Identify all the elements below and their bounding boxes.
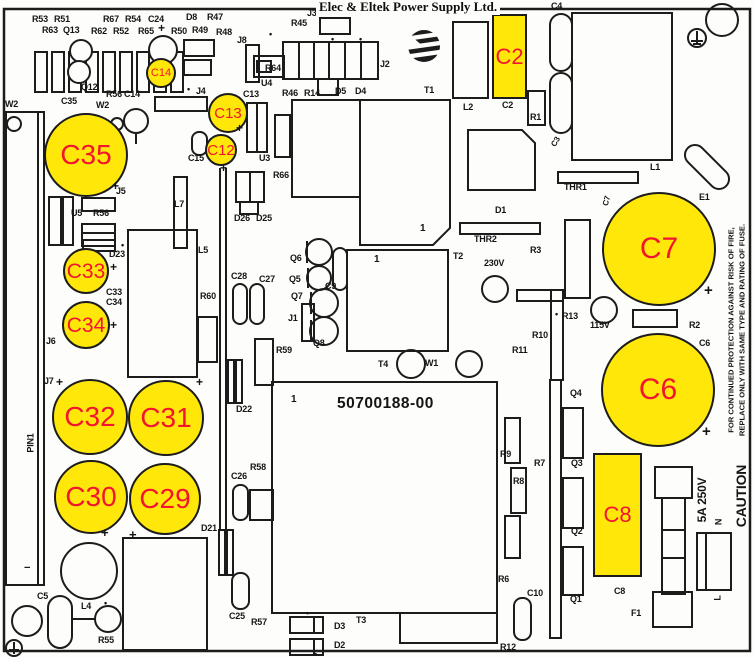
silkscreen-label: L4	[81, 602, 91, 611]
silkscreen-label: R56	[106, 90, 122, 99]
silkscreen-label: Q12	[81, 83, 97, 92]
caution-text-line1: FOR CONTINUED PROTECTION AGAINST RISK OF…	[727, 227, 736, 433]
silkscreen-label: Q1	[570, 595, 582, 604]
silkscreen-label: C13	[243, 90, 259, 99]
silkscreen-label: L2	[463, 103, 473, 112]
silkscreen-label: R57	[251, 618, 267, 627]
silkscreen-label: Q7	[291, 292, 303, 301]
silkscreen-label: R7	[534, 459, 545, 468]
part-number: 50700188-00	[337, 395, 434, 413]
silkscreen-label: C8	[614, 587, 625, 596]
silkscreen-label: R64	[265, 64, 281, 73]
silkscreen-label: C2	[502, 101, 513, 110]
silkscreen-label: R67	[103, 15, 119, 24]
silkscreen-label: J6	[46, 337, 56, 346]
silkscreen-label: R10	[532, 331, 548, 340]
silkscreen-label: Q8	[313, 339, 325, 348]
silkscreen-label: C35	[61, 97, 77, 106]
silkscreen-label: C26	[231, 472, 247, 481]
silkscreen-label: +	[110, 261, 117, 273]
silkscreen-label: •	[269, 30, 272, 39]
silkscreen-label: •	[555, 310, 558, 319]
silkscreen-label: U3	[259, 154, 270, 163]
silkscreen-labels: R53R51R67R54C24D8R47+R63Q13R62R52R65R50R…	[0, 0, 755, 658]
silkscreen-label: J1	[288, 314, 298, 323]
silkscreen-label: L	[714, 595, 723, 600]
silkscreen-label: C28	[231, 272, 247, 281]
silkscreen-label: 230V	[484, 259, 504, 268]
silkscreen-label: C7	[602, 195, 612, 207]
silkscreen-label: +	[129, 528, 136, 541]
silkscreen-label: D3	[334, 622, 345, 631]
silkscreen-label: •	[331, 35, 334, 44]
silkscreen-label: Q3	[571, 459, 583, 468]
silkscreen-label: C10	[527, 589, 543, 598]
silkscreen-label: C5	[37, 592, 48, 601]
silkscreen-label: 1	[420, 224, 425, 234]
silkscreen-label: R56	[93, 209, 109, 218]
silkscreen-label: C15	[188, 154, 204, 163]
silkscreen-label: R12	[500, 643, 516, 652]
silkscreen-label: •	[359, 35, 362, 44]
silkscreen-label: 115V	[590, 321, 610, 330]
silkscreen-label: R14	[304, 89, 320, 98]
silkscreen-label: R2	[689, 321, 700, 330]
silkscreen-label: R8	[513, 477, 524, 486]
silkscreen-label: •	[314, 650, 317, 658]
silkscreen-label: T4	[378, 360, 388, 369]
silkscreen-label: THR1	[564, 183, 587, 192]
silkscreen-label: R9	[500, 450, 511, 459]
silkscreen-label: D8	[186, 13, 197, 22]
silkscreen-label: E1	[699, 193, 710, 202]
silkscreen-label: •	[121, 241, 124, 250]
silkscreen-label: R6	[498, 575, 509, 584]
silkscreen-label: +	[196, 376, 203, 388]
silkscreen-label: R63	[42, 26, 58, 35]
silkscreen-label: D21	[201, 524, 217, 533]
silkscreen-label: +	[101, 526, 108, 539]
silkscreen-label: J5	[116, 187, 126, 196]
silkscreen-label: R66	[273, 171, 289, 180]
silkscreen-label: D2	[334, 641, 345, 650]
silkscreen-label: J8	[237, 36, 247, 45]
silkscreen-label: R1	[530, 113, 541, 122]
silkscreen-label: T2	[453, 252, 463, 261]
caution-text-line2: REPLACE ONLY WITH SAME TYPE AND RATING O…	[738, 224, 747, 436]
silkscreen-label: •	[306, 609, 309, 618]
silkscreen-label: C6	[699, 339, 710, 348]
silkscreen-label: +	[702, 424, 711, 439]
silkscreen-label: −	[24, 563, 30, 574]
silkscreen-label: Q4	[570, 389, 582, 398]
silkscreen-label: R48	[216, 28, 232, 37]
silkscreen-label: Q13	[63, 26, 79, 35]
silkscreen-label: •	[187, 85, 190, 94]
silkscreen-label: U4	[261, 79, 272, 88]
silkscreen-label: C14	[124, 90, 140, 99]
silkscreen-label: D1	[495, 206, 506, 215]
silkscreen-label: R11	[512, 346, 527, 355]
pcb-layout-diagram: C14C13C12C35C33C34C32C31C30C29C7C6C2C8 R…	[0, 0, 755, 658]
silkscreen-label: Q5	[289, 275, 301, 284]
silkscreen-label: +	[704, 283, 713, 298]
silkscreen-label: R52	[113, 27, 129, 36]
silkscreen-label: D26	[234, 214, 250, 223]
silkscreen-label: R58	[250, 463, 266, 472]
silkscreen-label: C27	[259, 275, 275, 284]
silkscreen-label: J2	[380, 60, 390, 69]
silkscreen-label: +	[236, 122, 243, 134]
silkscreen-label: R49	[192, 26, 208, 35]
silkscreen-label: R55	[98, 636, 114, 645]
silkscreen-label: R51	[54, 15, 70, 24]
silkscreen-label: THR2	[474, 235, 497, 244]
silkscreen-label: D22	[236, 405, 252, 414]
silkscreen-label: J7	[44, 377, 54, 386]
silkscreen-label: +	[110, 319, 117, 331]
silkscreen-label: F1	[631, 609, 641, 618]
silkscreen-label: D25	[256, 214, 272, 223]
silkscreen-label: L1	[650, 163, 660, 172]
silkscreen-label: D5	[335, 87, 346, 96]
silkscreen-label: R13	[562, 312, 578, 321]
silkscreen-label: 1	[291, 395, 296, 405]
silkscreen-label: Q2	[571, 527, 583, 536]
silkscreen-label: L5	[198, 246, 208, 255]
silkscreen-label: Q6	[290, 254, 302, 263]
silkscreen-label: CAUTION	[734, 465, 748, 527]
silkscreen-label: D23	[109, 250, 125, 259]
silkscreen-label: R45	[291, 19, 307, 28]
silkscreen-label: +	[220, 162, 227, 174]
silkscreen-label: 5A 250V	[696, 478, 708, 523]
silkscreen-label: R3	[530, 246, 541, 255]
silkscreen-label: R53	[32, 15, 48, 24]
silkscreen-label: R46	[282, 89, 298, 98]
silkscreen-label: T3	[356, 616, 366, 625]
silkscreen-label: R60	[200, 292, 216, 301]
silkscreen-label: W2	[96, 101, 109, 110]
board-title: Elec & Eltek Power Supply Ltd.	[316, 0, 500, 15]
silkscreen-label: D4	[355, 87, 366, 96]
silkscreen-label: C33	[106, 288, 122, 297]
silkscreen-label: +	[56, 376, 63, 388]
silkscreen-label: C3	[550, 136, 562, 149]
silkscreen-label: R47	[207, 13, 223, 22]
silkscreen-label: T1	[424, 86, 434, 95]
silkscreen-label: L7	[174, 200, 184, 209]
silkscreen-label: PIN1	[27, 433, 36, 452]
silkscreen-label: R62	[91, 27, 107, 36]
silkscreen-label: W2	[5, 100, 18, 109]
silkscreen-label: R65	[138, 27, 154, 36]
silkscreen-label: C25	[229, 612, 245, 621]
silkscreen-label: J4	[196, 87, 206, 96]
silkscreen-label: W1	[425, 359, 438, 368]
silkscreen-label: C4	[551, 2, 562, 11]
silkscreen-label: R50	[171, 27, 187, 36]
silkscreen-label: +	[158, 22, 165, 34]
silkscreen-label: N	[715, 519, 724, 525]
silkscreen-label: •	[104, 599, 107, 608]
silkscreen-label: U5	[71, 209, 82, 218]
silkscreen-label: R59	[276, 346, 292, 355]
silkscreen-label: R54	[125, 15, 141, 24]
silkscreen-label: C9	[325, 282, 336, 291]
silkscreen-label: C34	[106, 298, 122, 307]
silkscreen-label: 1	[374, 255, 379, 265]
